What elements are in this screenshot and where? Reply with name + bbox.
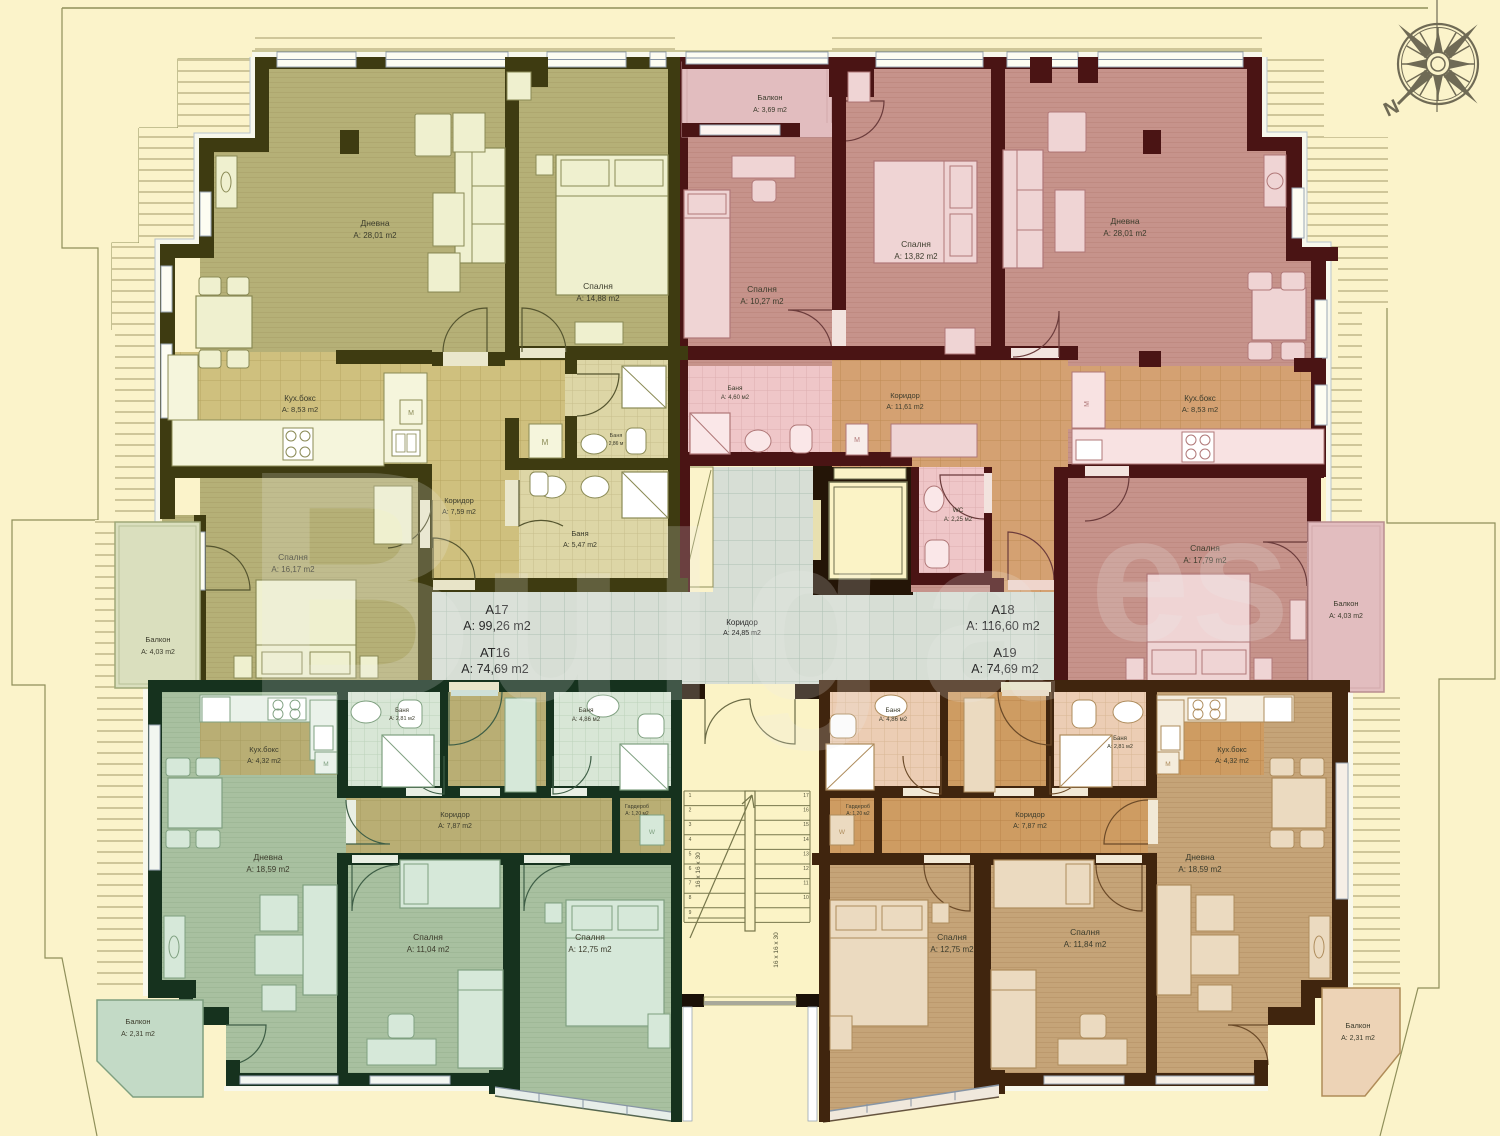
svg-text:А: 11,61 m2: А: 11,61 m2 — [886, 404, 923, 411]
svg-text:u: u — [480, 483, 627, 751]
svg-text:Баня: Баня — [886, 707, 901, 714]
svg-text:Спалня: Спалня — [747, 284, 777, 294]
svg-text:А: 7,87 m2: А: 7,87 m2 — [438, 823, 472, 830]
svg-text:3: 3 — [689, 822, 692, 828]
svg-text:А: 2,31 m2: А: 2,31 m2 — [121, 1031, 155, 1038]
svg-text:es: es — [1090, 478, 1290, 679]
svg-text:5: 5 — [689, 851, 692, 857]
svg-text:А: 11,84 m2: А: 11,84 m2 — [1064, 940, 1107, 949]
svg-text:W: W — [839, 829, 846, 836]
svg-text:Дневна: Дневна — [1185, 852, 1214, 862]
svg-text:7: 7 — [689, 881, 692, 887]
svg-text:Дневна: Дневна — [253, 852, 282, 862]
svg-text:16 x 16 x 30: 16 x 16 x 30 — [695, 852, 702, 888]
svg-text:14: 14 — [803, 837, 809, 843]
svg-text:А: 4,32 m2: А: 4,32 m2 — [1215, 758, 1249, 765]
svg-text:l: l — [650, 483, 717, 751]
svg-text:А: 10,27 m2: А: 10,27 m2 — [740, 297, 784, 306]
svg-text:А: 4,03 m2: А: 4,03 m2 — [1329, 613, 1363, 620]
svg-text:Балкон: Балкон — [125, 1017, 150, 1026]
svg-text:Кух.бокс: Кух.бокс — [1184, 394, 1216, 403]
svg-text:a: a — [920, 483, 1055, 751]
svg-text:А: 18,59 m2: А: 18,59 m2 — [1178, 865, 1222, 874]
svg-text:Спалня: Спалня — [575, 932, 605, 942]
svg-text:Кух.бокс: Кух.бокс — [1217, 745, 1247, 754]
svg-text:М: М — [1084, 401, 1091, 407]
svg-text:А: 4,03 m2: А: 4,03 m2 — [141, 649, 175, 656]
svg-text:15: 15 — [803, 822, 809, 828]
svg-text:Балкон: Балкон — [1345, 1021, 1370, 1030]
svg-text:Спалня: Спалня — [937, 932, 967, 942]
svg-text:А: 18,59 m2: А: 18,59 m2 — [246, 865, 290, 874]
svg-text:2,86 м: 2,86 м — [609, 441, 624, 447]
svg-text:12: 12 — [803, 866, 809, 872]
svg-text:Коридор: Коридор — [1015, 810, 1045, 819]
svg-text:А: 13,82 m2: А: 13,82 m2 — [894, 252, 938, 261]
svg-text:Коридор: Коридор — [890, 391, 920, 400]
svg-text:11: 11 — [803, 881, 808, 887]
svg-text:А: 8,53 m2: А: 8,53 m2 — [1182, 405, 1218, 414]
svg-text:А: 2,81 м2: А: 2,81 м2 — [1107, 744, 1133, 750]
svg-text:А: 7,87 m2: А: 7,87 m2 — [1013, 823, 1047, 830]
svg-text:g: g — [740, 483, 887, 751]
svg-text:Спалня: Спалня — [901, 239, 931, 249]
svg-text:А: 3,69 m2: А: 3,69 m2 — [753, 107, 787, 114]
svg-text:Балкон: Балкон — [145, 635, 170, 644]
svg-text:10: 10 — [803, 895, 809, 901]
svg-text:А: 4,60 м2: А: 4,60 м2 — [721, 395, 750, 401]
svg-text:16 x 16 x 30: 16 x 16 x 30 — [773, 932, 780, 968]
svg-text:М: М — [1165, 761, 1170, 768]
svg-text:Спалня: Спалня — [413, 932, 443, 942]
svg-text:М: М — [854, 437, 860, 444]
svg-text:Спалня: Спалня — [1070, 927, 1100, 937]
svg-text:4: 4 — [689, 837, 692, 843]
svg-text:8: 8 — [689, 895, 692, 901]
svg-text:16: 16 — [803, 808, 809, 814]
svg-text:Коридор: Коридор — [440, 810, 470, 819]
svg-text:М: М — [542, 438, 549, 447]
svg-text:17: 17 — [803, 793, 809, 799]
svg-text:Баня: Баня — [610, 433, 623, 439]
svg-text:А: 12,75 m2: А: 12,75 m2 — [930, 945, 974, 954]
svg-text:Балкон: Балкон — [757, 93, 782, 102]
svg-text:Дневна: Дневна — [360, 218, 389, 228]
svg-text:Спалня: Спалня — [583, 281, 613, 291]
svg-text:13: 13 — [803, 851, 809, 857]
svg-text:B: B — [240, 401, 478, 770]
svg-text:Гардероб: Гардероб — [625, 804, 649, 810]
svg-text:А: 2,31 m2: А: 2,31 m2 — [1341, 1035, 1375, 1042]
svg-text:А: 28,01 m2: А: 28,01 m2 — [1103, 229, 1147, 238]
svg-text:А: 1,20 м2: А: 1,20 м2 — [846, 811, 870, 817]
svg-text:Гардероб: Гардероб — [846, 804, 870, 810]
svg-text:А: 28,01 m2: А: 28,01 m2 — [353, 231, 397, 240]
svg-text:Балкон: Балкон — [1333, 599, 1358, 608]
svg-text:1: 1 — [689, 793, 692, 799]
svg-text:Дневна: Дневна — [1110, 216, 1139, 226]
svg-text:9: 9 — [689, 910, 692, 916]
svg-text:6: 6 — [689, 866, 692, 872]
svg-text:А: 14,88 m2: А: 14,88 m2 — [576, 294, 620, 303]
svg-text:А: 11,04 m2: А: 11,04 m2 — [407, 945, 450, 954]
svg-text:Баня: Баня — [1113, 736, 1127, 742]
svg-text:А: 1,20 м2: А: 1,20 м2 — [625, 811, 649, 817]
svg-text:А: 12,75 m2: А: 12,75 m2 — [568, 945, 612, 954]
svg-text:Баня: Баня — [728, 385, 743, 392]
svg-text:2: 2 — [689, 808, 692, 814]
svg-text:W: W — [649, 829, 656, 836]
